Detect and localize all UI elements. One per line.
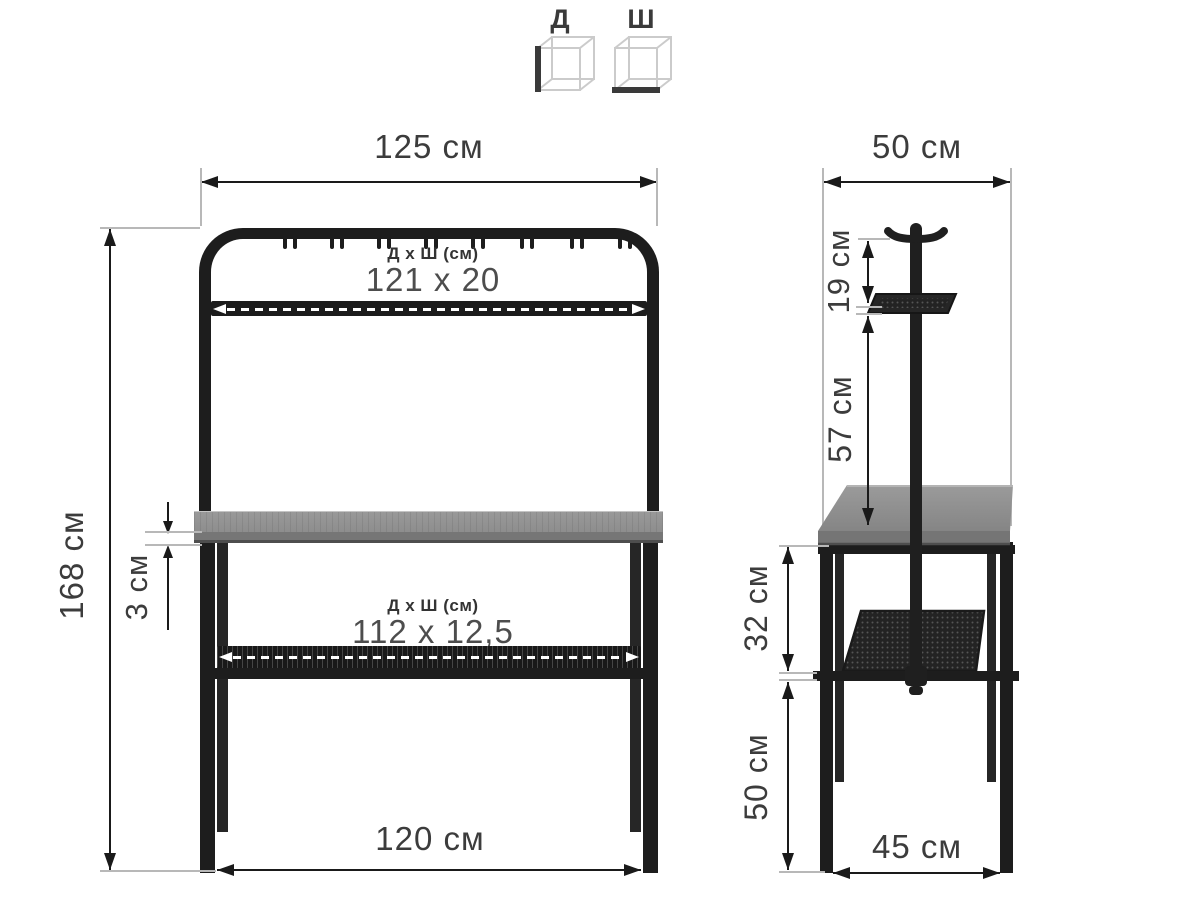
rail-hook [618, 239, 622, 249]
rail-hook [628, 239, 632, 249]
shelf-dash-line [227, 308, 631, 311]
side-pole-height-label: 57 см [822, 339, 858, 499]
side-leg-back-right [987, 550, 996, 782]
extension-line [656, 168, 658, 226]
legend-cubes-icon [520, 34, 680, 98]
lower-mesh-shelf [217, 646, 641, 668]
front-width-top-arrow [201, 181, 657, 183]
dimension-diagram: Д Ш 125 см Д х [0, 0, 1200, 900]
thickness-arrow-down [167, 502, 169, 522]
side-depth-bottom-label: 45 см [767, 828, 1067, 866]
front-leg-inner-right [630, 543, 641, 832]
extension-line [145, 531, 202, 533]
side-leg-back-left [835, 550, 844, 782]
front-lower-crossbar [202, 668, 656, 679]
front-leg-outer-left [200, 543, 215, 873]
pole-clamp [905, 666, 927, 686]
extension-line [200, 168, 202, 226]
length-cube-icon [538, 37, 594, 90]
hook-pole [910, 223, 922, 686]
front-leg-inner-left [217, 543, 228, 832]
extension-line [856, 313, 882, 315]
width-cube-icon [615, 37, 671, 90]
front-width-top-label: 125 см [279, 128, 579, 166]
shelf-arrowhead-left [213, 304, 226, 314]
shelf-dash-line [233, 656, 625, 659]
legend-length-label: Д [535, 4, 585, 35]
extension-line [858, 238, 890, 240]
side-pole-height-arrow [867, 316, 869, 525]
thickness-arrow-up [167, 557, 169, 630]
front-desktop-surface [194, 511, 663, 533]
extension-line [779, 672, 817, 674]
front-width-bottom-arrow [217, 869, 641, 871]
shelf-arrowhead-right [626, 652, 639, 662]
extension-line [779, 679, 817, 681]
side-undertop-label: 32 см [738, 538, 774, 678]
extension-line [856, 306, 882, 308]
side-hook-height-label: 19 см [821, 216, 855, 326]
side-depth-bottom-arrow [833, 872, 1000, 874]
front-width-bottom-label: 120 см [280, 820, 580, 858]
pole-tray-mesh [876, 298, 950, 308]
side-leg-front-right [1000, 542, 1013, 873]
legend-width-label: Ш [616, 4, 666, 35]
front-height-label: 168 см [53, 455, 93, 675]
front-leg-outer-right [643, 543, 658, 873]
front-desktop-edge [194, 532, 663, 543]
pole-foot [909, 686, 923, 695]
hanging-shelf-edge [211, 301, 647, 316]
front-thickness-label: 3 см [119, 527, 153, 647]
extension-line [145, 544, 202, 546]
side-leg-front-left [820, 542, 833, 873]
top-shelf-size: 121 x 20 [283, 261, 583, 299]
shelf-arrowhead-left [219, 652, 232, 662]
side-hook-height-arrow [867, 241, 869, 303]
extension-line [100, 870, 216, 872]
front-height-arrow [109, 229, 111, 870]
side-undertop-arrow [787, 547, 789, 671]
shelf-arrowhead-right [632, 304, 645, 314]
extension-line [779, 871, 825, 873]
